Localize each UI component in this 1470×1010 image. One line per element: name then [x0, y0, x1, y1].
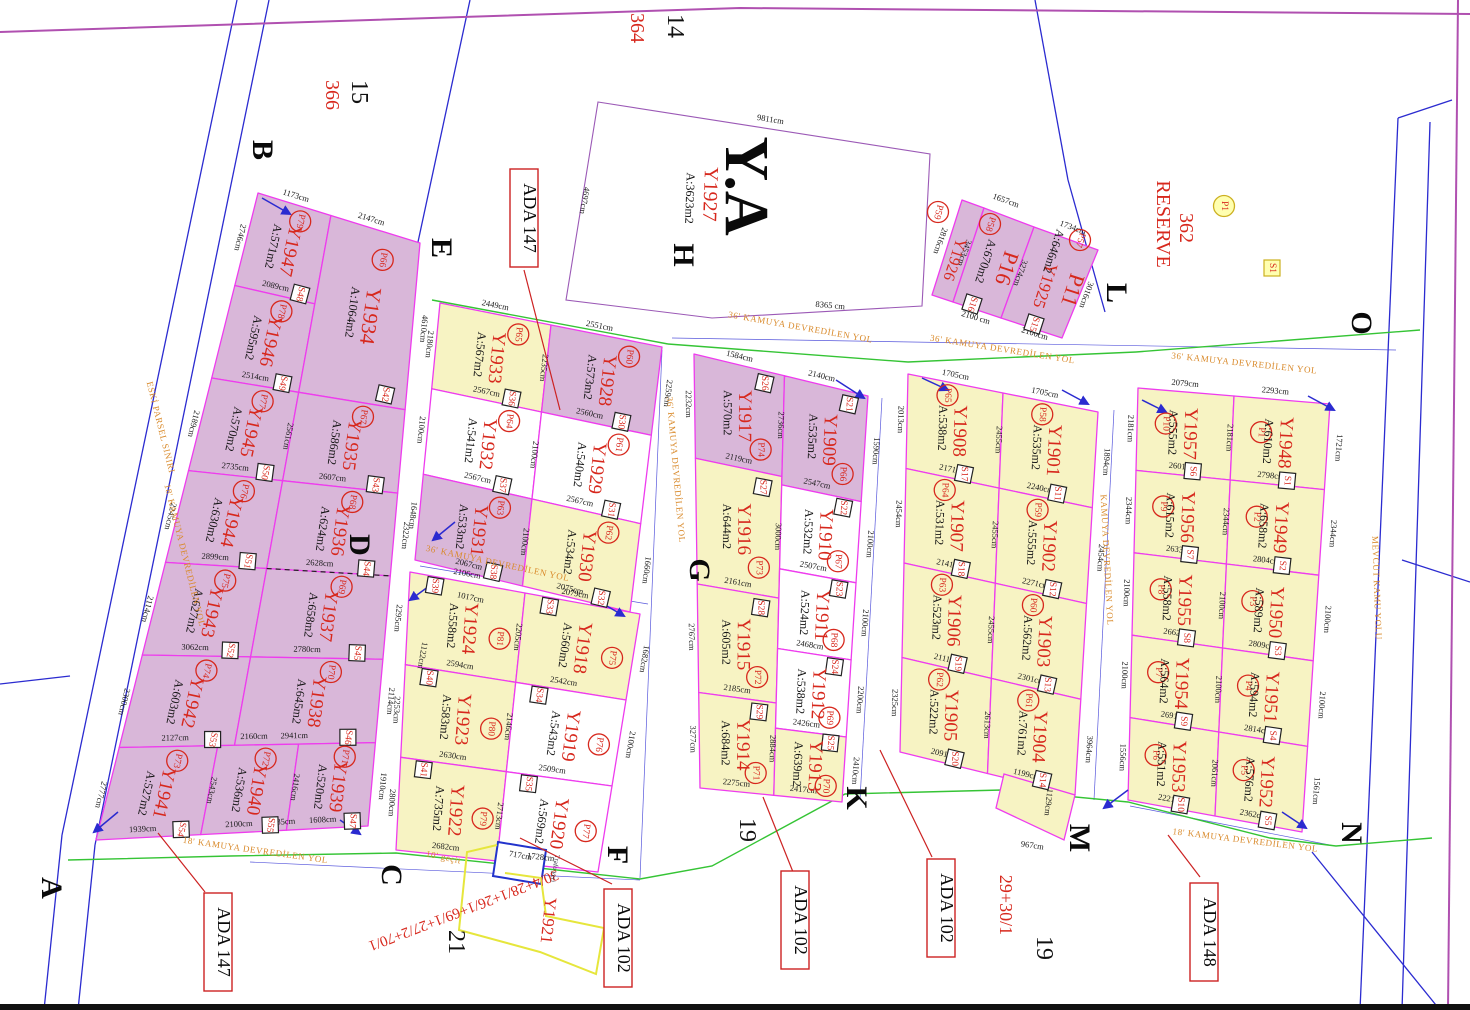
p-marker-P1: P1: [1219, 201, 1229, 211]
map-text: 15: [346, 80, 372, 104]
dimension-label: 2899cm: [201, 551, 229, 563]
dimension-label: 2061cm: [1209, 759, 1220, 787]
s-marker-S43: S43: [369, 477, 381, 493]
ada-leader: [1168, 835, 1200, 877]
dimension-label: 2100cm: [624, 730, 638, 759]
dimension-label: 2100cm: [1322, 605, 1334, 633]
parcel-area-Y1955: A:558m2: [1160, 575, 1176, 621]
dimension-label: 2100cm: [225, 818, 253, 829]
map-text: 21: [443, 930, 469, 954]
dimension-label: 1556cm: [1118, 744, 1129, 772]
parcel-area-Y1917: A:570m2: [721, 390, 735, 435]
parcel-area-Y1908: A:538m2: [935, 405, 950, 451]
parcel-area-Y1915: A:605m2: [719, 619, 733, 664]
dimension-label: 1894cm: [1101, 448, 1113, 476]
ada-leader: [763, 797, 793, 872]
map-text: A:3623m2: [682, 172, 698, 224]
p-marker-P60: P60: [1027, 597, 1038, 613]
road-line: [418, 0, 470, 242]
road-label: ESKİ PARSEL SINIRI: [145, 380, 177, 474]
dimension-label: 2200cm: [855, 686, 867, 714]
ada-label-ADA-102: ADA 102: [937, 873, 957, 943]
s-marker-S27: S27: [757, 480, 767, 495]
dimension-label: 2455cm: [990, 521, 1001, 549]
map-text: Y1921: [537, 897, 561, 945]
p-marker-P72: P72: [752, 670, 762, 685]
parcel-area-Y1911: A:524m2: [797, 590, 813, 636]
dimension-label: 1910cm: [377, 772, 389, 801]
parcel-area-Y1948: A:610m2: [1260, 418, 1277, 464]
dimension-label: 2780cm: [293, 644, 321, 654]
s-marker-S4: S4: [1267, 730, 1278, 741]
s-marker-S39: S39: [429, 578, 440, 594]
cadastral-map: { "colors": { "parcel_purple": "#d9b7d9"…: [0, 0, 1470, 1010]
p-marker-P59: P59: [1032, 502, 1043, 518]
ada-label-ADA-102: ADA 102: [791, 885, 811, 955]
s-marker-S26: S26: [759, 376, 769, 391]
p-marker-P61: P61: [1023, 693, 1034, 709]
parcel-area-Y1954: A:564m2: [1157, 658, 1173, 704]
parcel-name-Y1956: Y1956: [1176, 491, 1199, 543]
parcel-area-Y1910: A:532m2: [800, 509, 816, 555]
ada-label-ADA-147: ADA 147: [214, 907, 234, 977]
road-line: [1402, 560, 1470, 582]
survey-arrow: [1104, 790, 1128, 808]
parcel-name-Y1917: Y1917: [734, 390, 755, 442]
map-text: RESERVE: [1152, 180, 1174, 267]
parcel-area-Y1909: A:535m2: [805, 413, 821, 459]
ada-label-ADA-148: ADA 148: [1200, 897, 1220, 967]
dimension-label: 2344cm: [1221, 508, 1232, 536]
dimension-label: 3964cm: [1084, 735, 1096, 763]
dimension-label: 1705cm: [1031, 385, 1060, 400]
s-marker-S41: S41: [418, 762, 429, 778]
parcel-name-Y1905: Y1905: [939, 689, 962, 741]
dimension-label: 2100cm: [1213, 676, 1224, 704]
parcel-area-Y1912: A:538m2: [793, 668, 809, 714]
s-marker-S31: S31: [605, 502, 617, 518]
ref-letter-L: L: [1100, 283, 1133, 303]
parcel-area-Y1952: A:576m2: [1241, 756, 1258, 802]
parcel-area-Y1951: A:594m2: [1246, 672, 1263, 718]
s-marker-S30: S30: [615, 414, 627, 430]
dimension-label: 1682cm: [638, 645, 652, 674]
dimension-label: 2127cm: [161, 732, 189, 743]
parcel-name-Y1953: Y1953: [1167, 740, 1190, 792]
dimension-label: 3277cm: [688, 725, 698, 753]
s-marker-S8: S8: [1181, 633, 1191, 644]
parcel-name-Y1957: Y1957: [1179, 408, 1202, 460]
map-text: 362: [1175, 213, 1197, 243]
map-text: 19: [734, 818, 760, 842]
s-marker-S7: S7: [1184, 549, 1194, 560]
survey-arrow: [1062, 390, 1088, 404]
p-marker-P64: P64: [939, 482, 949, 497]
s-marker-S29: S29: [754, 704, 764, 719]
road-line: [0, 676, 70, 684]
dimension-label: 2100cm: [1120, 661, 1131, 689]
p-marker-P79: P79: [477, 811, 488, 827]
dimension-label: 2455cm: [986, 616, 997, 644]
parcel-area-Y1914: A:684m2: [719, 720, 733, 765]
parcel-area-Y1957: A:555m2: [1165, 409, 1181, 455]
parcel-name-Y1908: Y1908: [948, 405, 971, 457]
s-marker-S22: S22: [838, 500, 849, 515]
parcel-area-Y1916: A:644m2: [720, 504, 734, 549]
parcel-name-Y1915: Y1915: [733, 619, 754, 671]
dimension-label: 1721cm: [1333, 434, 1345, 462]
dimension-label: 1660cm: [640, 556, 653, 585]
road-line: [78, 845, 95, 1010]
map-text: 29+30/1: [996, 875, 1016, 935]
map-text: 14: [662, 14, 688, 38]
s-marker-S44: S44: [360, 560, 372, 576]
dimension-label: 2454cm: [894, 500, 905, 528]
ref-letter-A: A: [35, 877, 68, 899]
dimension-label: 1608cm: [309, 814, 337, 825]
s-marker-S23: S23: [833, 581, 844, 596]
bottom-bar: [0, 1004, 1470, 1010]
dimension-label: 2344cm: [1328, 520, 1340, 548]
ada-label-ADA-102: ADA 102: [614, 903, 634, 973]
road-label: 36' KAMUYA DEVREDİLEN YOL: [1171, 350, 1318, 375]
s-marker-S6: S6: [1187, 466, 1197, 477]
ref-letter-B: B: [246, 140, 279, 160]
p-marker-P74: P74: [755, 442, 765, 457]
parcel-area-Y1906: A:523m2: [929, 594, 944, 640]
s-marker-S1: S1: [1267, 263, 1277, 273]
p-marker-P58: P58: [1037, 407, 1048, 423]
parcel-name-Y1913: Y1913: [803, 740, 826, 793]
ada-leader: [880, 750, 932, 857]
ref-letter-G: G: [683, 558, 716, 581]
parcel-name-Y1912: Y1912: [806, 667, 829, 720]
parcel-name-Y1907: Y1907: [945, 500, 968, 552]
ref-letter-H: H: [667, 243, 700, 266]
dimension-label: 2736cm: [776, 411, 787, 439]
s-marker-S36: S36: [506, 391, 517, 407]
parcel-name-Y1955: Y1955: [1173, 574, 1196, 626]
dimension-label: 2079cm: [1171, 377, 1200, 389]
parcel-area-Y1901: A:535m2: [1029, 424, 1045, 470]
s-marker-S33: S33: [543, 598, 555, 614]
map-text: 366: [321, 80, 343, 110]
s-marker-S17: S17: [959, 466, 969, 481]
s-marker-S13: S13: [1042, 677, 1053, 693]
map-text: 19: [1031, 936, 1057, 960]
dimension-label: 1648cm: [407, 501, 420, 530]
dimension-label: 1705cm: [941, 367, 970, 382]
p-marker-P65: P65: [942, 388, 952, 403]
ref-letter-E: E: [425, 238, 458, 258]
dimension-label: 2455cm: [994, 426, 1005, 454]
parcel-area-Y1905: A:522m2: [926, 689, 941, 735]
parcel-area-Y1903: A:562m2: [1019, 615, 1035, 661]
parcel-name-Y1954: Y1954: [1170, 657, 1193, 710]
parcel-area-Y1950: A:589m2: [1251, 587, 1268, 633]
dimension-label: 2100cm: [1316, 691, 1328, 719]
dimension-label: 2613cm: [982, 711, 993, 739]
road-label: MEVCUT KAMU YOLU: [1370, 536, 1384, 640]
dimension-label: 2344cm: [1124, 497, 1135, 525]
s-marker-S12: S12: [1047, 581, 1058, 597]
dimension-label: 2160cm: [240, 731, 268, 742]
ref-letter-F: F: [601, 846, 634, 864]
parcel-area-Y1953: A:551m2: [1154, 741, 1170, 787]
s-marker-S2: S2: [1277, 560, 1288, 571]
dimension-label: 2100cm: [1217, 592, 1228, 620]
dimension-label: 2100cm: [1122, 579, 1133, 607]
parcel-name-Y1911: Y1911: [810, 589, 833, 641]
parcel-area-Y1956: A:615m2: [1162, 492, 1178, 538]
dimension-label: 2295cm: [392, 604, 404, 633]
s-marker-S35: S35: [522, 776, 534, 792]
road-line: [44, 835, 62, 1010]
s-marker-S34: S34: [533, 687, 545, 703]
parcel-area-Y1913: A:639m2: [790, 741, 806, 787]
p-marker-P80: P80: [485, 721, 496, 737]
p-marker-P76: P76: [593, 736, 605, 752]
map-text: Y1927: [698, 167, 722, 222]
dimension-label: 1939cm: [129, 823, 157, 834]
p-marker-P73: P73: [754, 560, 764, 575]
s-marker-S10: S10: [1175, 797, 1186, 812]
ref-letter-D: D: [343, 534, 376, 556]
dimension-label: 2253cm: [391, 696, 402, 724]
p-marker-P77: P77: [580, 823, 592, 839]
ada-label-ADA-147: ADA 147: [520, 183, 540, 253]
dimension-label: 2884cm: [768, 735, 779, 763]
road-label: 18' KAMUYA DEVREDİLEN YOL: [182, 835, 328, 865]
ref-letter-C: C: [375, 864, 408, 886]
p-marker-P66: P66: [377, 252, 389, 268]
s-marker-S3: S3: [1272, 645, 1283, 656]
dimension-label: 2013cm: [896, 406, 907, 434]
dimension-label: 2100cm: [865, 530, 877, 558]
s-marker-S20: S20: [949, 751, 959, 766]
parcel-name-Y1914: Y1914: [732, 719, 753, 771]
s-marker-S19: S19: [952, 656, 962, 671]
map-canvas: 1173cm2147cm2089cm2514cm2735cm2899cm3062…: [0, 0, 1470, 1010]
p-marker-P81: P81: [494, 631, 505, 647]
dimension-label: 3062cm: [181, 642, 209, 652]
parcel-name-Y1906: Y1906: [942, 594, 965, 646]
dimension-label: 2100cm: [859, 609, 871, 637]
s-marker-S47: S47: [346, 813, 358, 829]
s-marker-S9: S9: [1178, 716, 1188, 727]
dimension-label: 2100cm: [415, 416, 428, 445]
s-marker-S32: S32: [595, 590, 607, 606]
dimension-label: 1657cm: [991, 191, 1021, 210]
s-marker-S37: S37: [496, 477, 507, 493]
dimension-label: 2325cm: [890, 689, 901, 717]
s-marker-S18: S18: [955, 561, 965, 576]
dimension-label: 2628cm: [306, 557, 334, 569]
ref-letter-M: M: [1063, 824, 1096, 852]
map-border-right: [1448, 0, 1458, 1010]
dimension-label: 2293cm: [1261, 384, 1290, 396]
road-line: [1402, 122, 1430, 1010]
road-line: [1035, 0, 1068, 180]
dimension-label: 3000cm: [773, 523, 784, 551]
dimension-label: 1561cm: [1311, 777, 1323, 805]
s-marker-S45: S45: [351, 645, 363, 661]
dimension-label: 2941cm: [280, 730, 308, 741]
p-marker-P64: P64: [503, 413, 514, 429]
ref-letter-K: K: [840, 786, 873, 810]
dimension-label: 1590cm: [870, 437, 882, 465]
ref-letter-O: O: [1345, 311, 1378, 334]
road-label: 36' KAMUYA DEVREDİLEN YOL: [665, 396, 688, 543]
parcel-name-Y1916: Y1916: [733, 503, 754, 555]
ref-letter-N: N: [1335, 822, 1368, 844]
dimension-label: 2181cm: [1126, 415, 1137, 443]
p-marker-P60: P60: [623, 349, 635, 365]
dimension-label: 2232cm: [684, 390, 694, 418]
road-line: [1398, 100, 1452, 118]
p-marker-P66: P66: [837, 466, 848, 481]
parcel-area-Y1902: A:555m2: [1024, 520, 1040, 566]
s-marker-S21: S21: [843, 397, 854, 412]
dimension-label: 2181cm: [1224, 424, 1235, 452]
dimension-label: 2140cm: [807, 368, 836, 384]
p-marker-P61: P61: [613, 437, 625, 453]
p-marker-P63: P63: [936, 577, 946, 592]
s-marker-S42: S42: [379, 386, 391, 402]
dimension-label: 2800cm: [387, 789, 398, 817]
dimension-label: 9811cm: [756, 112, 785, 126]
p-marker-P75: P75: [606, 650, 618, 666]
p-marker-P63: P63: [494, 500, 505, 516]
parcel-area-Y1949: A:658m2: [1255, 503, 1272, 549]
map-text: 364: [626, 13, 648, 43]
parcel-area-Y1904: A:761m2: [1014, 710, 1030, 756]
p-marker-P62: P62: [602, 525, 614, 541]
s-marker-S40: S40: [423, 670, 434, 686]
p-marker-P65: P65: [512, 327, 523, 343]
s-marker-S5: S5: [1262, 815, 1273, 826]
dimension-label: 2410cm: [850, 757, 862, 785]
s-marker-S1: S1: [1282, 475, 1293, 486]
map-border-top: [0, 8, 1470, 32]
dimension-label: 2767cm: [687, 623, 697, 651]
parcel-area-Y1907: A:531m2: [932, 500, 947, 546]
s-marker-S11: S11: [1052, 486, 1063, 501]
s-marker-S46: S46: [342, 729, 354, 745]
p-marker-P62: P62: [934, 672, 944, 687]
s-marker-S28: S28: [755, 600, 765, 615]
s-marker-S14: S14: [1037, 772, 1048, 788]
dimension-label: 967cm: [1020, 838, 1045, 851]
p-marker-P59: P59: [931, 204, 945, 221]
road-line: [1312, 852, 1440, 1010]
